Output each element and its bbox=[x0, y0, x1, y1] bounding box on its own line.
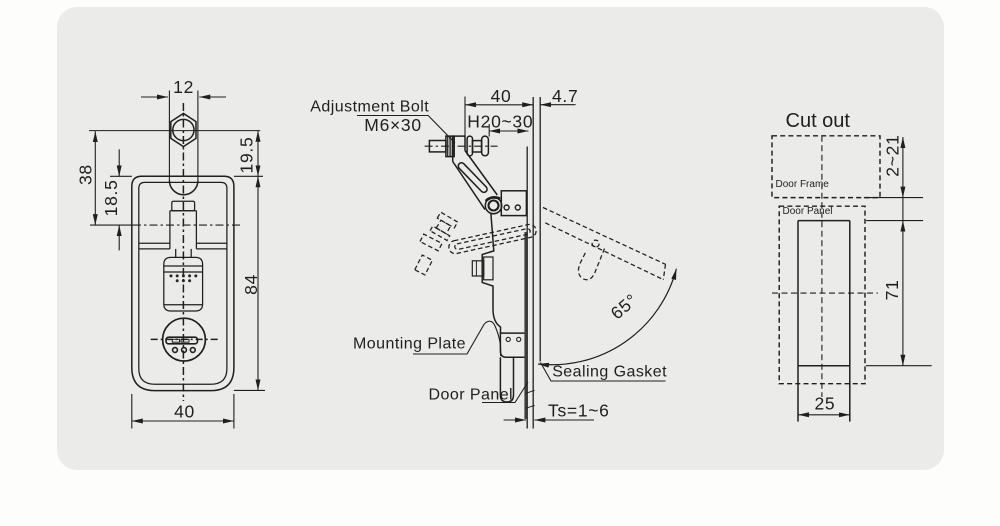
svg-text:25: 25 bbox=[814, 394, 835, 414]
svg-text:Adjustment Bolt: Adjustment Bolt bbox=[310, 98, 429, 115]
svg-text:4.7: 4.7 bbox=[552, 86, 578, 106]
svg-text:Door Panel: Door Panel bbox=[783, 206, 833, 217]
svg-text:Door Frame: Door Frame bbox=[776, 179, 830, 190]
svg-text:Sealing Gasket: Sealing Gasket bbox=[552, 364, 667, 381]
svg-text:2~21: 2~21 bbox=[882, 134, 902, 176]
svg-text:Cut out: Cut out bbox=[786, 110, 851, 132]
svg-text:84: 84 bbox=[241, 274, 261, 295]
svg-text:Ts=1~6: Ts=1~6 bbox=[548, 400, 610, 420]
svg-text:38: 38 bbox=[76, 164, 96, 185]
svg-text:40: 40 bbox=[174, 402, 195, 422]
svg-text:M6×30: M6×30 bbox=[364, 115, 422, 135]
svg-text:H20~30: H20~30 bbox=[467, 111, 533, 131]
svg-text:19.5: 19.5 bbox=[236, 137, 256, 174]
svg-text:71: 71 bbox=[882, 279, 902, 300]
svg-text:Mounting Plate: Mounting Plate bbox=[353, 336, 466, 353]
svg-text:18.5: 18.5 bbox=[101, 179, 121, 216]
svg-text:Door Panel: Door Panel bbox=[429, 387, 514, 404]
svg-text:40: 40 bbox=[491, 86, 512, 106]
svg-text:12: 12 bbox=[173, 77, 194, 97]
